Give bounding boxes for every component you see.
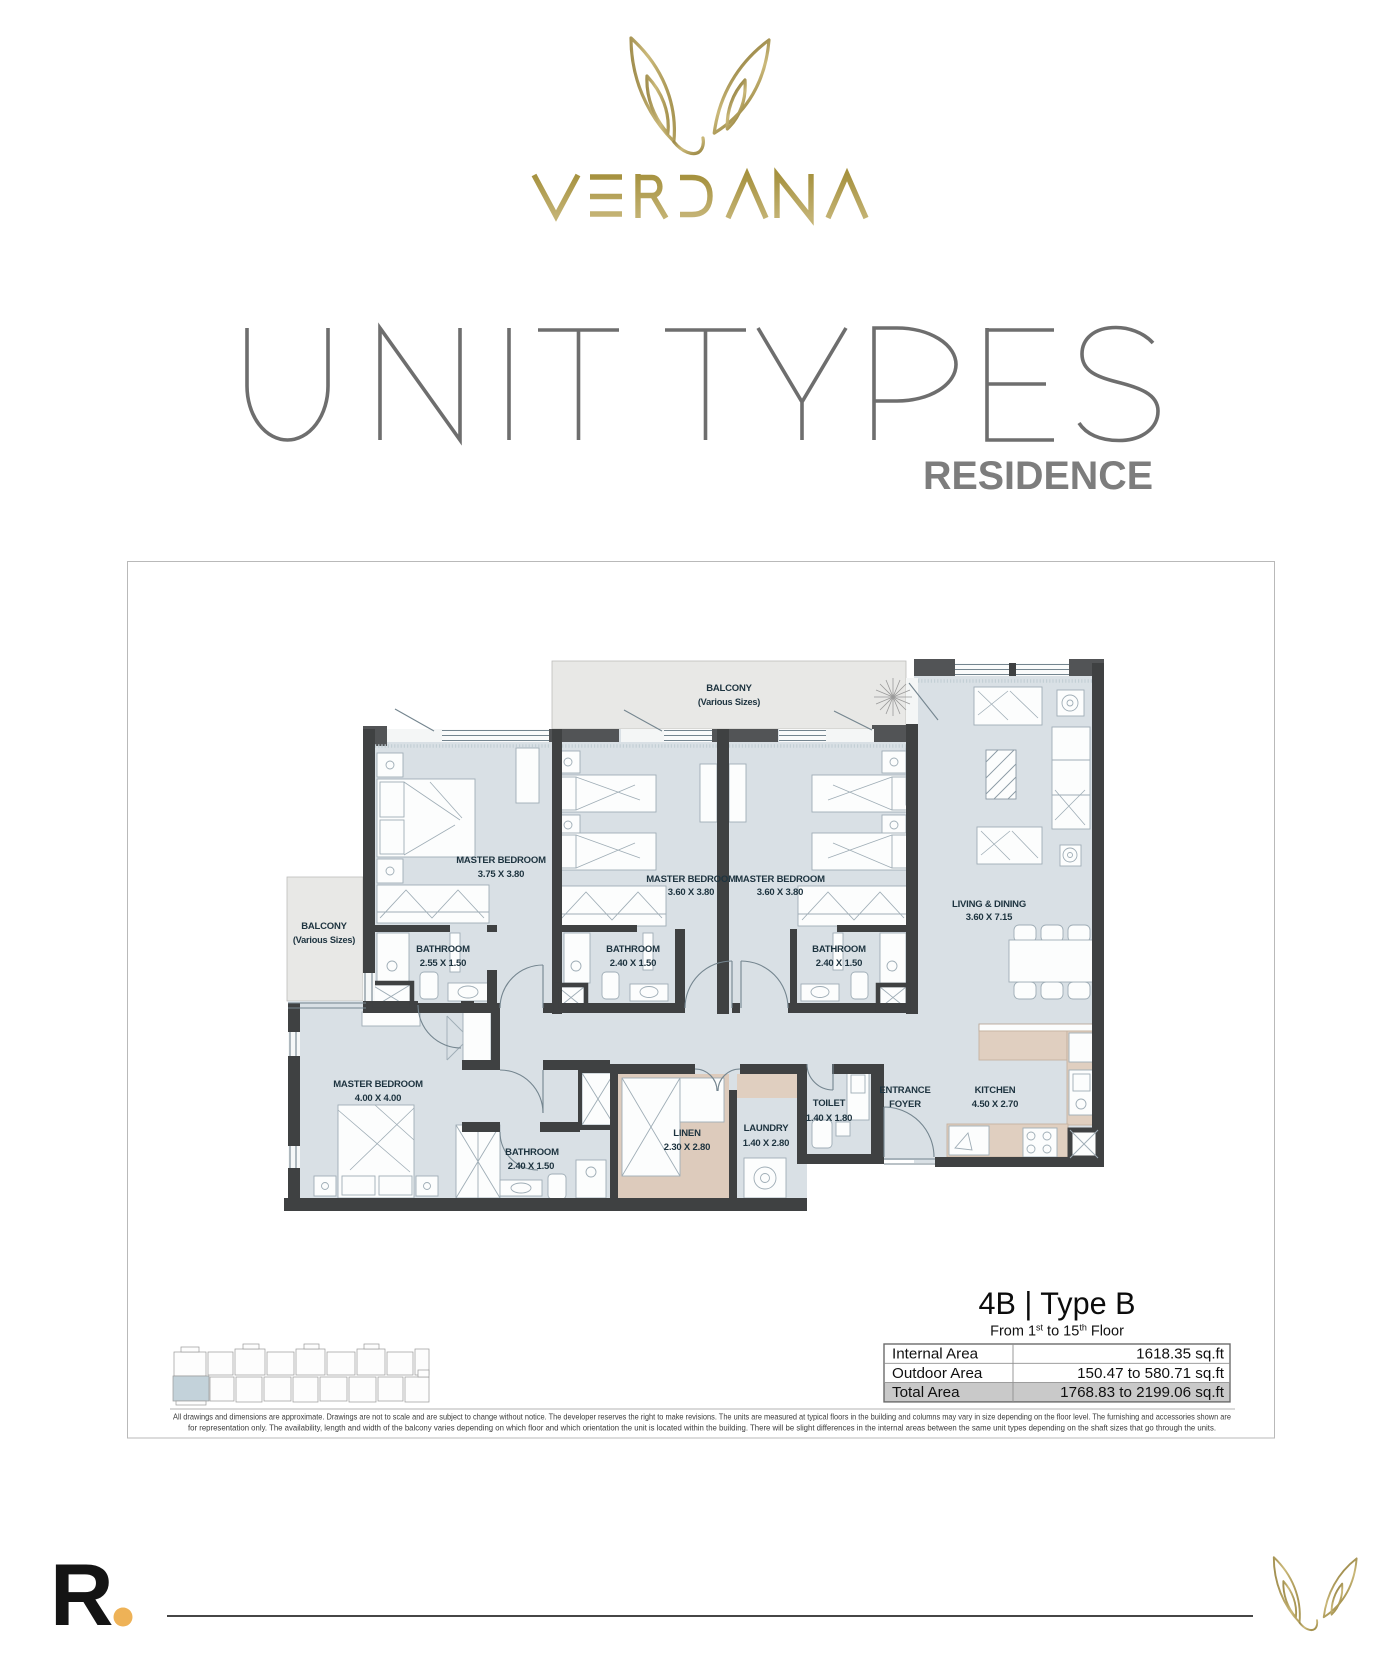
svg-text:150.47 to 580.71 sq.ft: 150.47 to 580.71 sq.ft [1077, 1365, 1225, 1382]
svg-text:3.75 X 3.80: 3.75 X 3.80 [478, 869, 524, 880]
svg-text:R: R [50, 1545, 114, 1644]
svg-text:FOYER: FOYER [889, 1099, 921, 1110]
svg-text:MASTER BEDROOM: MASTER BEDROOM [456, 855, 546, 866]
svg-text:BATHROOM: BATHROOM [812, 944, 866, 955]
svg-text:2.40 X 1.50: 2.40 X 1.50 [610, 958, 656, 969]
svg-text:1618.35 sq.ft: 1618.35 sq.ft [1136, 1346, 1225, 1363]
svg-text:4B | Type B: 4B | Type B [979, 1285, 1136, 1321]
svg-text:(Various Sizes): (Various Sizes) [698, 697, 760, 707]
svg-text:1.40 X 2.80: 1.40 X 2.80 [743, 1138, 789, 1149]
svg-text:2.40 X 1.50: 2.40 X 1.50 [816, 958, 862, 969]
svg-text:KITCHEN: KITCHEN [975, 1085, 1016, 1096]
svg-text:4.00 X 4.00: 4.00 X 4.00 [355, 1093, 401, 1104]
svg-text:Internal Area: Internal Area [892, 1346, 979, 1363]
svg-text:BATHROOM: BATHROOM [416, 944, 470, 955]
svg-text:3.60 X 3.80: 3.60 X 3.80 [668, 887, 714, 898]
svg-text:RESIDENCE: RESIDENCE [923, 454, 1153, 498]
svg-text:LAUNDRY: LAUNDRY [744, 1123, 790, 1134]
svg-text:MASTER BEDROOM: MASTER BEDROOM [646, 874, 736, 885]
svg-text:MASTER BEDROOM: MASTER BEDROOM [735, 874, 825, 885]
svg-text:MASTER BEDROOM: MASTER BEDROOM [333, 1079, 423, 1090]
svg-text:Outdoor Area: Outdoor Area [892, 1365, 983, 1382]
svg-text:From 1st to 15th Floor: From 1st to 15th Floor [990, 1323, 1124, 1340]
svg-text:4.50 X 2.70: 4.50 X 2.70 [972, 1099, 1018, 1110]
svg-text:ENTRANCE: ENTRANCE [879, 1085, 930, 1096]
svg-text:2.55 X 1.50: 2.55 X 1.50 [420, 958, 466, 969]
svg-text:3.60 X 3.80: 3.60 X 3.80 [757, 887, 803, 898]
svg-text:1.40 X 1.80: 1.40 X 1.80 [806, 1113, 852, 1124]
svg-text:BALCONY: BALCONY [301, 921, 347, 932]
svg-text:2.30 X 2.80: 2.30 X 2.80 [664, 1142, 710, 1153]
svg-text:LIVING & DINING: LIVING & DINING [952, 899, 1026, 910]
svg-text:LINEN: LINEN [673, 1128, 701, 1139]
svg-text:1768.83 to 2199.06 sq.ft: 1768.83 to 2199.06 sq.ft [1060, 1384, 1225, 1401]
svg-text:BATHROOM: BATHROOM [606, 944, 660, 955]
svg-text:TOILET: TOILET [813, 1098, 846, 1109]
svg-text:(Various Sizes): (Various Sizes) [293, 935, 355, 945]
svg-text:2.40 X 1.50: 2.40 X 1.50 [508, 1161, 554, 1172]
svg-text:BATHROOM: BATHROOM [505, 1147, 559, 1158]
svg-text:Total Area: Total Area [892, 1384, 960, 1401]
svg-text:BALCONY: BALCONY [706, 683, 752, 694]
svg-text:3.60 X 7.15: 3.60 X 7.15 [966, 912, 1013, 923]
svg-text:for representation only. The a: for representation only. The availabilit… [188, 1423, 1216, 1433]
svg-text:All drawings and dimensions ar: All drawings and dimensions are approxim… [173, 1412, 1231, 1422]
